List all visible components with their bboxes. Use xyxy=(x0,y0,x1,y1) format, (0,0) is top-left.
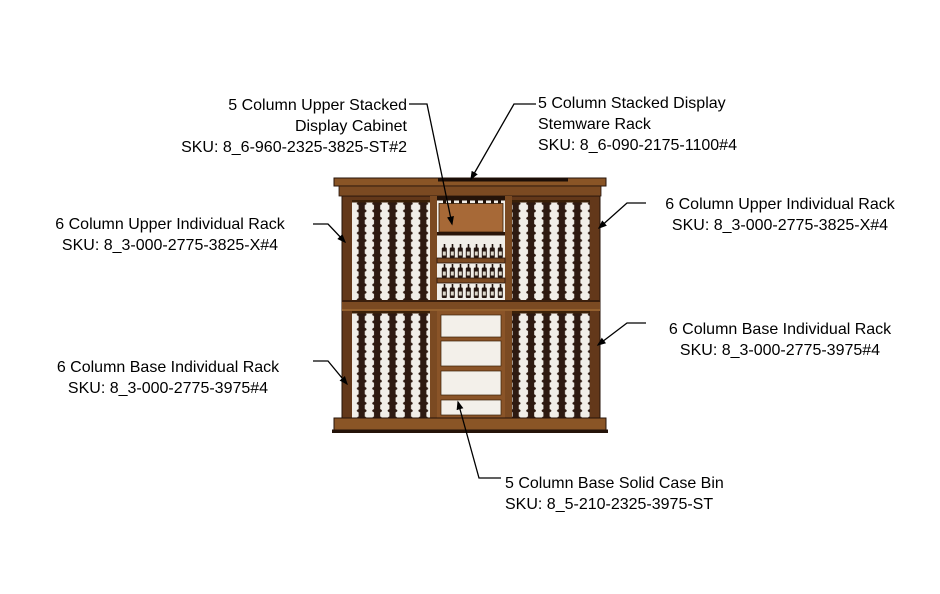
label-line: Stemware Rack xyxy=(538,114,737,135)
display-cabinet-graphic xyxy=(437,196,505,300)
base-individual-rack-right-graphic xyxy=(512,311,590,418)
upper-individual-rack-left-graphic xyxy=(352,200,430,300)
label-line: 6 Column Upper Individual Rack xyxy=(20,214,320,235)
label-sku: SKU: 8_3-000-2775-3975#4 xyxy=(640,340,920,361)
cabinet-body xyxy=(332,178,608,433)
leader-upper-rack-right xyxy=(599,203,646,228)
leader-base-rack-right xyxy=(598,323,646,345)
label-upper-stacked-display-cabinet: 5 Column Upper Stacked Display Cabinet S… xyxy=(181,95,407,158)
label-line: 5 Column Base Solid Case Bin xyxy=(505,473,724,494)
base-molding xyxy=(334,418,606,430)
base-individual-rack-left-graphic xyxy=(352,311,430,418)
diagram-canvas: 5 Column Upper Stacked Display Cabinet S… xyxy=(0,0,940,594)
label-sku: SKU: 8_3-000-2775-3825-X#4 xyxy=(20,235,320,256)
label-sku: SKU: 8_3-000-2775-3975#4 xyxy=(18,378,318,399)
upper-individual-rack-right-graphic xyxy=(512,200,590,300)
label-upper-individual-rack-right: 6 Column Upper Individual Rack SKU: 8_3-… xyxy=(640,194,920,236)
label-line: 5 Column Upper Stacked xyxy=(181,95,407,116)
case-bin-graphic xyxy=(437,311,505,418)
label-line: 6 Column Upper Individual Rack xyxy=(640,194,920,215)
label-base-individual-rack-right: 6 Column Base Individual Rack SKU: 8_3-0… xyxy=(640,319,920,361)
label-line: Display Cabinet xyxy=(181,116,407,137)
label-stacked-display-stemware-rack: 5 Column Stacked Display Stemware Rack S… xyxy=(538,93,737,156)
label-sku: SKU: 8_6-960-2325-3825-ST#2 xyxy=(181,137,407,158)
label-line: 5 Column Stacked Display xyxy=(538,93,737,114)
label-upper-individual-rack-left: 6 Column Upper Individual Rack SKU: 8_3-… xyxy=(20,214,320,256)
label-base-solid-case-bin: 5 Column Base Solid Case Bin SKU: 8_5-21… xyxy=(505,473,724,515)
label-sku: SKU: 8_6-090-2175-1100#4 xyxy=(538,135,737,156)
label-sku: SKU: 8_3-000-2775-3825-X#4 xyxy=(640,215,920,236)
wine-cabinet-illustration xyxy=(0,0,940,594)
label-base-individual-rack-left: 6 Column Base Individual Rack SKU: 8_3-0… xyxy=(18,357,318,399)
leader-stemware-rack xyxy=(471,104,536,179)
label-line: 6 Column Base Individual Rack xyxy=(18,357,318,378)
label-line: 6 Column Base Individual Rack xyxy=(640,319,920,340)
label-sku: SKU: 8_5-210-2325-3975-ST xyxy=(505,494,724,515)
